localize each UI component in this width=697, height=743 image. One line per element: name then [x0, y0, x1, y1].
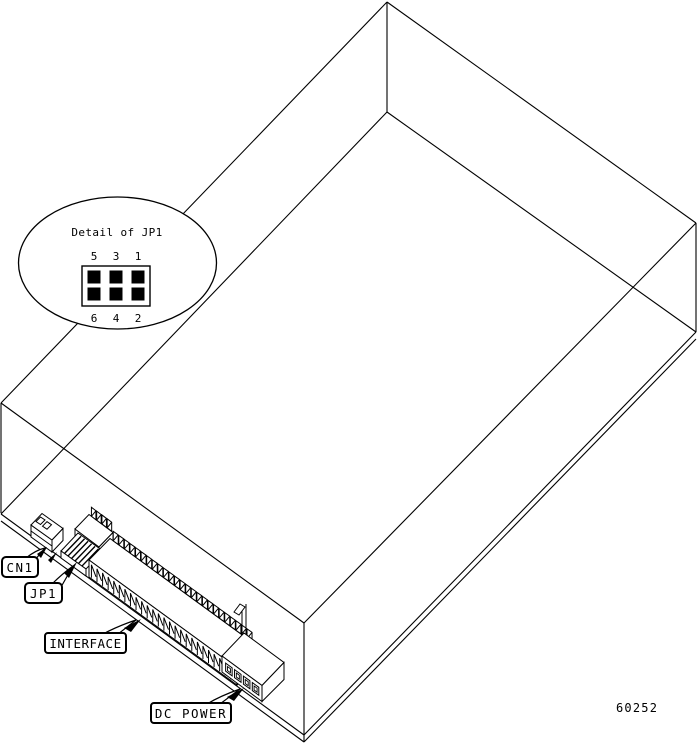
plate-edge-right-upper	[304, 332, 696, 735]
jp1-pin-square	[132, 288, 145, 301]
label-interface: INTERFACE	[45, 619, 141, 653]
pin-number-1: 1	[135, 250, 142, 263]
dc-power-label-text: DC POWER	[155, 706, 227, 721]
pin-number-3: 3	[113, 250, 120, 263]
cn1-label-text: CN1	[6, 560, 33, 575]
detail-callout: Detail of JP1 5 3 1 6 4 2	[19, 197, 217, 329]
edge-top-right	[387, 2, 696, 223]
jp1-label-text: JP1	[30, 586, 57, 601]
callout-title: Detail of JP1	[71, 226, 162, 239]
label-cn1: CN1	[2, 547, 57, 577]
label-dc-power: DC POWER	[151, 688, 244, 723]
chassis-wireframe	[1, 2, 696, 742]
pin-number-4: 4	[113, 312, 120, 325]
edge-top-left	[1, 2, 387, 403]
jp1-pin-square	[88, 271, 101, 284]
jp1-pin-square	[132, 271, 145, 284]
jp1-pin-square	[110, 288, 123, 301]
pin-number-5: 5	[91, 250, 98, 263]
diagram-canvas: Detail of JP1 5 3 1 6 4 2	[0, 0, 697, 743]
hardware-isometric-diagram: Detail of JP1 5 3 1 6 4 2	[0, 0, 697, 743]
interface-label-text: INTERFACE	[49, 636, 121, 651]
jp1-pin-square	[88, 288, 101, 301]
figure-number: 60252	[616, 701, 658, 715]
pin-number-2: 2	[135, 312, 142, 325]
edge-bottom-back-right	[387, 112, 696, 332]
interface-end-pin	[234, 604, 245, 615]
jp1-pin-square	[110, 271, 123, 284]
callout-ellipse	[19, 197, 217, 329]
edge-front-right-top	[304, 223, 696, 623]
plate-edge-right-lower	[304, 339, 696, 742]
pin-number-6: 6	[91, 312, 98, 325]
